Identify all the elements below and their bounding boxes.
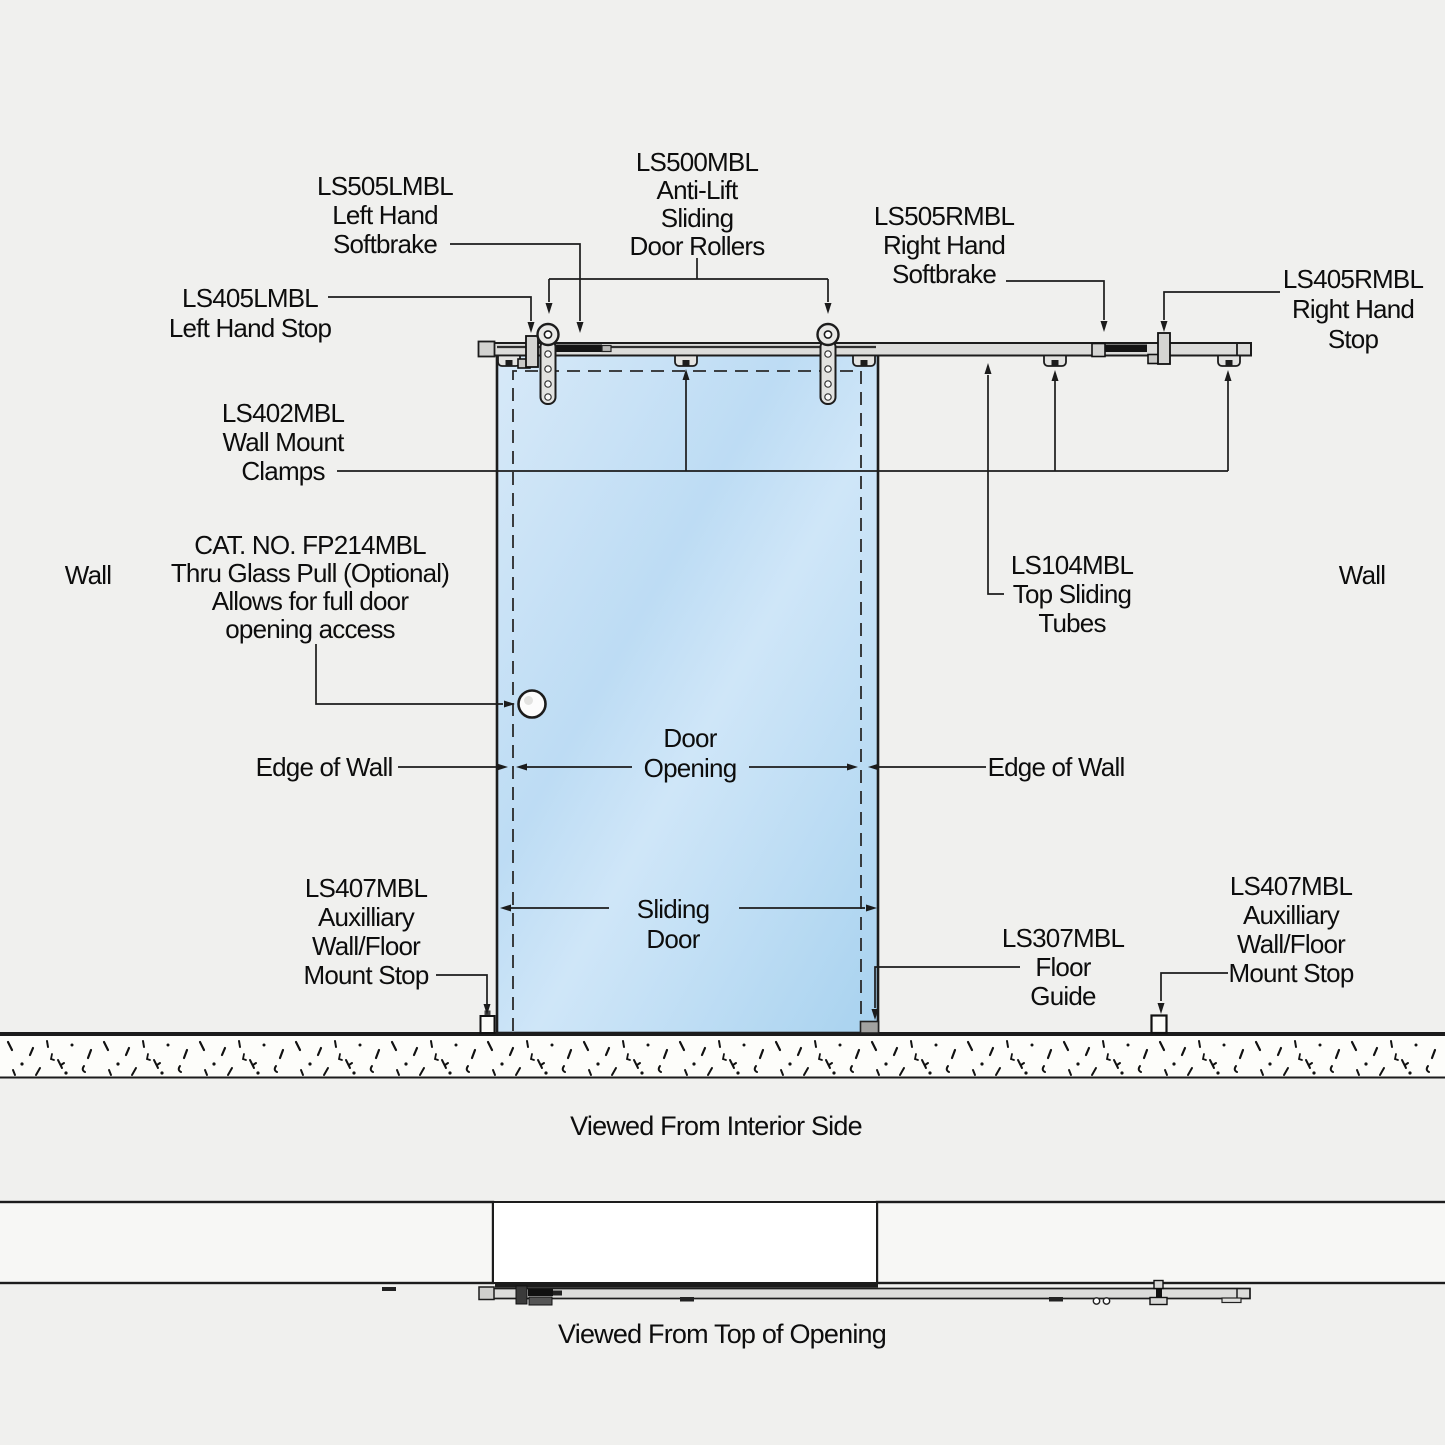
leader-ls407r [1161,973,1228,1001]
clamp-tab [1218,356,1240,367]
label-line: LS307MBL [1002,924,1124,953]
plan-track [480,1289,1250,1299]
plan-glass-door [495,1283,878,1288]
leader-ls505l [450,244,580,321]
label-line: Wall/Floor [304,932,429,961]
leader-ls307 [875,967,1020,1008]
leader-ls500 [549,258,828,302]
label-line: LS405RMBL [1283,264,1423,294]
label-sliding-door-dimension: Sliding Door [637,894,709,954]
label-line: Wall/Floor [1229,930,1354,959]
label-ls407mbl-right-mount-stop: LS407MBL Auxilliary Wall/Floor Mount Sto… [1229,872,1354,988]
label-line: Top Sliding [1011,580,1133,609]
label-line: Stop [1283,324,1423,354]
label-line: LS405LMBL [169,283,331,313]
label-line: Allows for full door [171,587,449,615]
label-line: Softbrake [317,230,453,259]
label-line: Softbrake [874,260,1014,289]
label-line: Floor [1002,953,1124,982]
leader-fp214 [316,644,503,704]
plan-wall-right [877,1202,1445,1283]
caption-viewed-from-interior-side: Viewed From Interior Side [570,1112,862,1141]
label-line: Tubes [1011,609,1133,638]
label-line: Door [637,924,709,954]
label-line: Auxilliary [304,903,429,932]
label-edge-of-wall-left: Edge of Wall [256,753,393,782]
label-line: LS500MBL [630,148,765,176]
label-ls505rmbl-right-softbrake: LS505RMBL Right Hand Softbrake [874,202,1014,289]
label-line: Door [644,723,737,753]
floor-guide [861,1022,879,1034]
label-line: Right Hand [1283,294,1423,324]
label-line: Wall [65,561,111,590]
left-softbrake-hardware [556,345,611,353]
label-line: Sliding [637,894,709,924]
sliding-door-installation-diagram: LS505LMBL Left Hand Softbrake LS500MBL A… [0,0,1445,1445]
label-ls307mbl-floor-guide: LS307MBL Floor Guide [1002,924,1124,1011]
label-line: Right Hand [874,231,1014,260]
label-line: Wall [1339,561,1385,590]
label-ls405rmbl-right-stop: LS405RMBL Right Hand Stop [1283,264,1423,354]
label-ls405lmbl-left-stop: LS405LMBL Left Hand Stop [169,283,331,343]
label-line: Opening [644,753,737,783]
label-line: Left Hand [317,201,453,230]
label-line: Auxilliary [1229,901,1354,930]
label-wall-right: Wall [1339,561,1385,590]
label-ls104mbl-top-sliding-tubes: LS104MBL Top Sliding Tubes [1011,551,1133,638]
label-fp214mbl-thru-glass-pull: CAT. NO. FP214MBL Thru Glass Pull (Optio… [171,531,449,643]
label-line: LS505RMBL [874,202,1014,231]
leader-ls405l [328,297,531,321]
label-line: LS104MBL [1011,551,1133,580]
label-ls402mbl-clamps: LS402MBL Wall Mount Clamps [222,399,344,486]
door-roller-right [818,324,839,404]
label-line: LS407MBL [304,874,429,903]
thru-glass-pull [519,691,546,718]
plan-wall-left [0,1202,493,1283]
label-line: opening access [171,615,449,643]
label-line: Clamps [222,457,344,486]
caption-line: Viewed From Interior Side [570,1112,862,1141]
plan-door-opening [493,1202,877,1283]
label-line: Edge of Wall [988,753,1125,782]
leader-ls405r [1164,292,1280,320]
caption-viewed-from-top-of-opening: Viewed From Top of Opening [558,1320,886,1349]
leader-ls505r [1006,281,1104,320]
clamp-tab [675,356,697,367]
label-line: Anti-Lift [630,176,765,204]
label-door-opening-dimension: Door Opening [644,723,737,783]
leader-ls104 [988,375,1004,594]
label-line: Sliding [630,204,765,232]
label-line: Mount Stop [1229,959,1354,988]
label-line: Wall Mount [222,428,344,457]
label-ls407mbl-left-mount-stop: LS407MBL Auxilliary Wall/Floor Mount Sto… [304,874,429,990]
left-floor-mount-stop [481,1011,495,1034]
label-edge-of-wall-right: Edge of Wall [988,753,1125,782]
plan-view [0,1202,1445,1305]
leader-ls407l [436,975,487,1004]
plan-track-left-cap [479,1287,494,1300]
label-line: Left Hand Stop [169,313,331,343]
label-line: Edge of Wall [256,753,393,782]
track-left-cap [479,342,495,357]
clamp-tab [1044,356,1066,367]
caption-line: Viewed From Top of Opening [558,1320,886,1349]
label-ls500mbl-rollers: LS500MBL Anti-Lift Sliding Door Rollers [630,148,765,260]
floor-section [0,1032,1445,1078]
label-line: Door Rollers [630,232,765,260]
clamp-tab [498,356,520,367]
label-line: Mount Stop [304,961,429,990]
right-floor-mount-stop [1152,1016,1167,1034]
door-roller-left [538,324,559,404]
label-line: LS402MBL [222,399,344,428]
label-line: CAT. NO. FP214MBL [171,531,449,559]
label-ls505lmbl-left-softbrake: LS505LMBL Left Hand Softbrake [317,172,453,259]
clamp-tab [853,356,875,367]
label-wall-left: Wall [65,561,111,590]
label-line: Guide [1002,982,1124,1011]
label-line: Thru Glass Pull (Optional) [171,559,449,587]
label-line: LS407MBL [1229,872,1354,901]
label-line: LS505LMBL [317,172,453,201]
